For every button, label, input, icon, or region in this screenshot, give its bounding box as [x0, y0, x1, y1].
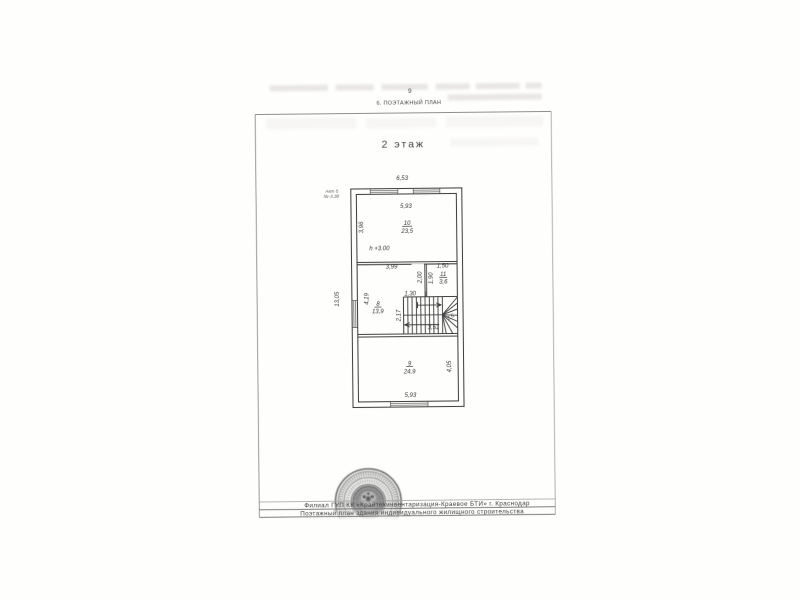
- svg-text:№-3,38: №-3,38: [324, 194, 340, 199]
- svg-text:2,17: 2,17: [397, 309, 403, 322]
- svg-text:1,50: 1,50: [437, 264, 449, 270]
- svg-text:13,9: 13,9: [372, 309, 384, 315]
- svg-text:4,05: 4,05: [447, 360, 453, 372]
- svg-text:23,5: 23,5: [400, 229, 413, 235]
- svg-text:3,51: 3,51: [428, 325, 440, 331]
- svg-text:5,93: 5,93: [405, 393, 417, 399]
- svg-text:6,53: 6,53: [396, 176, 408, 182]
- svg-text:1,30: 1,30: [404, 291, 416, 297]
- svg-text:5,93: 5,93: [400, 204, 412, 210]
- svg-text:3,96: 3,96: [359, 221, 365, 233]
- svg-text:2,00: 2,00: [418, 271, 424, 284]
- svg-text:3,6: 3,6: [439, 280, 448, 286]
- svg-text:3,99: 3,99: [386, 265, 398, 271]
- svg-text:24,9: 24,9: [403, 369, 416, 375]
- svg-text:4,19: 4,19: [364, 292, 370, 304]
- svg-text:2 этаж: 2 этаж: [382, 138, 426, 150]
- svg-text:13,05: 13,05: [335, 291, 341, 307]
- svg-text:1,90: 1,90: [429, 272, 435, 284]
- svg-text:h +3.00: h +3.00: [369, 246, 390, 252]
- svg-text:9: 9: [408, 88, 412, 95]
